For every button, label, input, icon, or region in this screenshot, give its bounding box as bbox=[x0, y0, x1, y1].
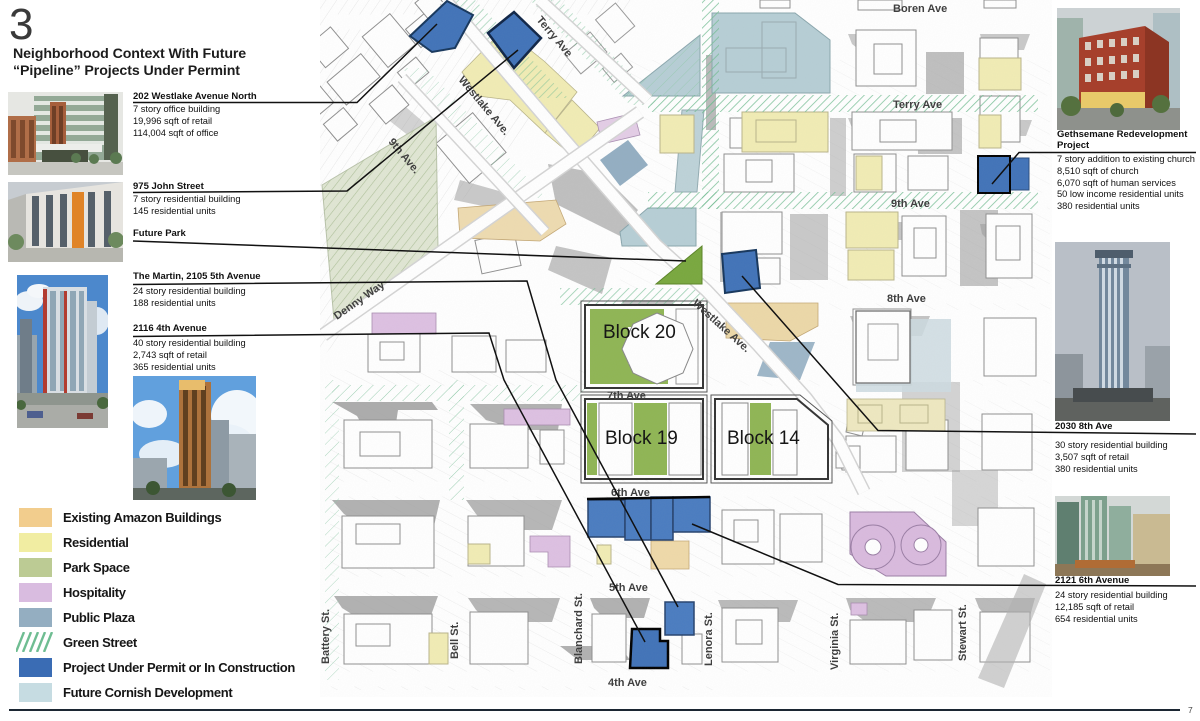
svg-text:7: 7 bbox=[1188, 705, 1193, 715]
